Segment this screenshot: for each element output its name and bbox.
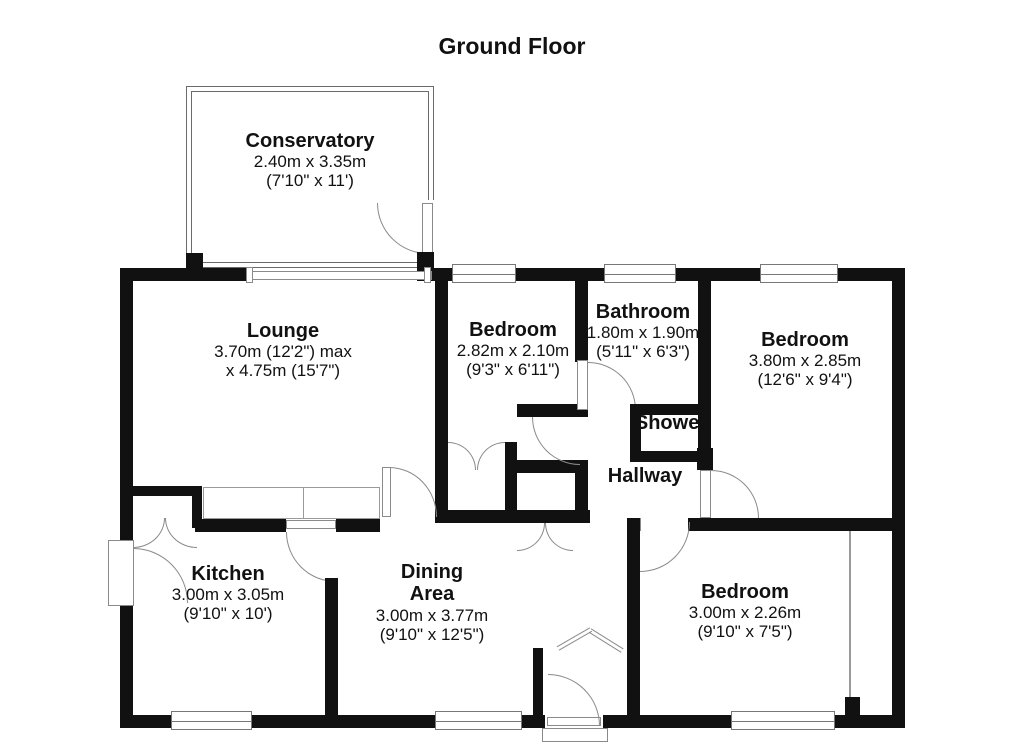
- room-imperial: (9'3" x 6'11"): [403, 360, 623, 379]
- window-bedroom3: [731, 711, 835, 730]
- room-metric: 3.00m x 2.26m: [635, 603, 855, 622]
- patio-slider-tick-right: [424, 267, 431, 283]
- room-name: Bedroom: [695, 329, 915, 351]
- bedroom1-door-arc: [532, 417, 580, 465]
- bedroom3-wardrobe-stub: [845, 697, 860, 715]
- lounge-dining-door-arc: [389, 467, 437, 517]
- wall-bottom-1: [120, 715, 171, 728]
- wall-alcove-top: [130, 486, 200, 496]
- bedroom3-door-arc: [640, 522, 690, 572]
- wall-kitchen-top-1: [195, 519, 286, 532]
- wall-bottom-4: [603, 715, 731, 728]
- room-imperial: (9'10" x 7'5"): [635, 622, 855, 641]
- room-metric: 3.70m (12'2") max: [173, 342, 393, 361]
- room-label-bedroom2: Bedroom 3.80m x 2.85m (12'6" x 9'4"): [695, 329, 915, 389]
- window-bedroom2: [760, 264, 838, 283]
- back-door-step: [542, 728, 608, 742]
- wall-closet-mid: [505, 442, 517, 510]
- room-name: Bedroom: [635, 581, 855, 603]
- room-name: Bathroom: [533, 301, 753, 323]
- wall-shower-bottom: [630, 451, 698, 462]
- vestibule-door-leaf-b: [589, 628, 624, 652]
- closetA-bifold-right: [477, 442, 505, 470]
- wall-top-2: [516, 268, 604, 281]
- room-imperial: (7'10" x 11'): [200, 171, 420, 190]
- wall-lounge-bedroom1: [435, 281, 448, 523]
- room-label-conservatory: Conservatory 2.40m x 3.35m (7'10" x 11'): [200, 130, 420, 190]
- wall-top-3: [676, 268, 760, 281]
- floor-plan: Ground Floor: [0, 0, 1024, 745]
- area-label-hallway: Hallway: [580, 465, 710, 488]
- wall-top-left: [120, 268, 248, 281]
- room-name: Lounge: [173, 320, 393, 342]
- room-name: Conservatory: [200, 130, 420, 152]
- wall-bottom-5: [835, 715, 905, 728]
- wall-bottom-3: [522, 715, 545, 728]
- room-imperial: (9'10" x 12'5"): [322, 625, 542, 644]
- closetB-bifold-right: [545, 523, 573, 551]
- closetB-bifold-left: [517, 523, 545, 551]
- room-label-dining-area: Dining Area 3.00m x 3.77m (9'10" x 12'5"…: [322, 561, 542, 644]
- wall-top-1: [432, 268, 452, 281]
- alcove-bifold-right: [165, 518, 197, 548]
- window-bedroom1: [452, 264, 516, 283]
- window-bathroom: [604, 264, 676, 283]
- room-label-bedroom3: Bedroom 3.00m x 2.26m (9'10" x 7'5"): [635, 581, 855, 641]
- wall-closet-bottom: [435, 510, 590, 523]
- room-imperial: (12'6" x 9'4"): [695, 370, 915, 389]
- room-metric: 2.40m x 3.35m: [200, 152, 420, 171]
- room-metric: 3.00m x 3.77m: [322, 606, 542, 625]
- alcove-bifold-left: [133, 518, 165, 548]
- patio-slider: [248, 271, 432, 280]
- room-imperial: (9'10" x 10'): [118, 604, 338, 623]
- area-label-shower: Shower: [606, 412, 736, 435]
- bedroom2-door-arc: [711, 470, 759, 518]
- vestibule-door-leaf-a: [557, 627, 592, 650]
- closetA-bifold-left: [448, 442, 476, 470]
- window-kitchen: [171, 711, 252, 730]
- wall-bottom-2: [252, 715, 435, 728]
- wall-kitchen-top-2: [336, 519, 380, 532]
- room-label-kitchen: Kitchen 3.00m x 3.05m (9'10" x 10'): [118, 563, 338, 623]
- kitchen-door-leaf: [286, 520, 336, 529]
- room-name-line2: Area: [322, 583, 542, 605]
- lounge-fitted-unit: [203, 487, 380, 519]
- wall-bedroom2-bottom: [688, 518, 892, 531]
- lounge-fitted-unit-divider: [303, 488, 304, 518]
- room-name: Kitchen: [118, 563, 338, 585]
- wall-left-upper: [120, 268, 133, 543]
- room-metric: 3.80m x 2.85m: [695, 351, 915, 370]
- room-imperial: x 4.75m (15'7"): [173, 361, 393, 380]
- room-label-lounge: Lounge 3.70m (12'2") max x 4.75m (15'7"): [173, 320, 393, 380]
- window-dining: [435, 711, 522, 730]
- wall-vestibule-stub: [533, 648, 543, 715]
- room-metric: 3.00m x 3.05m: [118, 585, 338, 604]
- back-door-arc: [548, 674, 600, 726]
- floor-title: Ground Floor: [312, 33, 712, 60]
- patio-slider-tick-left: [246, 267, 253, 283]
- room-name-line1: Dining: [322, 561, 542, 583]
